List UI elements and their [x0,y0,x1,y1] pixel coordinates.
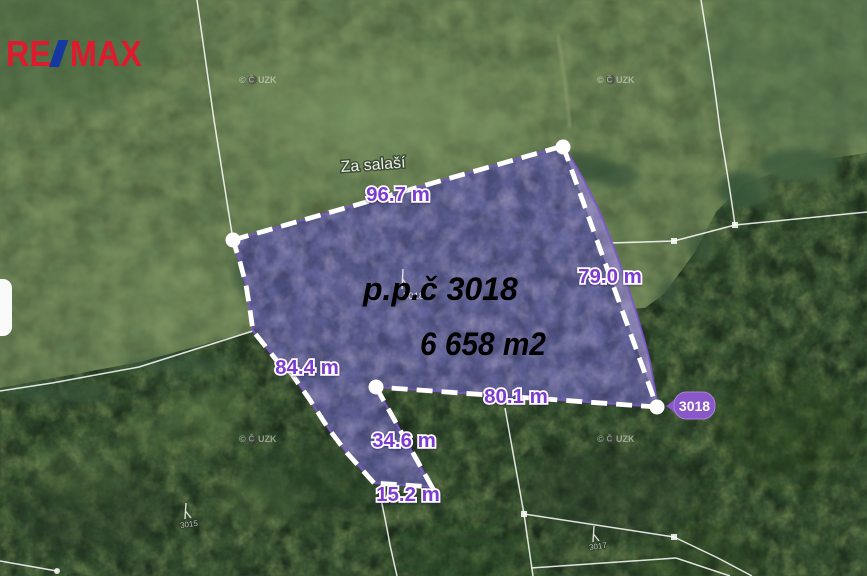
svg-text:3018: 3018 [679,398,710,414]
svg-text:79.0 m: 79.0 m [578,265,642,288]
svg-text:p.p.č 3018: p.p.č 3018 [362,271,518,307]
svg-text:15.2 m: 15.2 m [376,483,440,506]
svg-text:UZK: UZK [258,75,277,85]
svg-text:Č: Č [249,76,255,85]
svg-text:©: © [597,75,604,85]
svg-text:6 658 m2: 6 658 m2 [420,326,546,362]
svg-text:Č: Č [607,76,613,85]
svg-text:Č: Č [249,435,255,444]
svg-text:UZK: UZK [616,434,635,444]
svg-text:34.6 m: 34.6 m [372,429,436,452]
svg-text:UZK: UZK [616,75,635,85]
svg-text:©: © [239,75,246,85]
svg-text:©: © [597,434,604,444]
svg-text:80.1 m: 80.1 m [484,385,548,408]
svg-text:Č: Č [607,435,613,444]
svg-text:84.4 m: 84.4 m [275,356,339,379]
svg-text:96.7 m: 96.7 m [366,183,430,206]
svg-text:UZK: UZK [258,434,277,444]
svg-text:©: © [239,434,246,444]
